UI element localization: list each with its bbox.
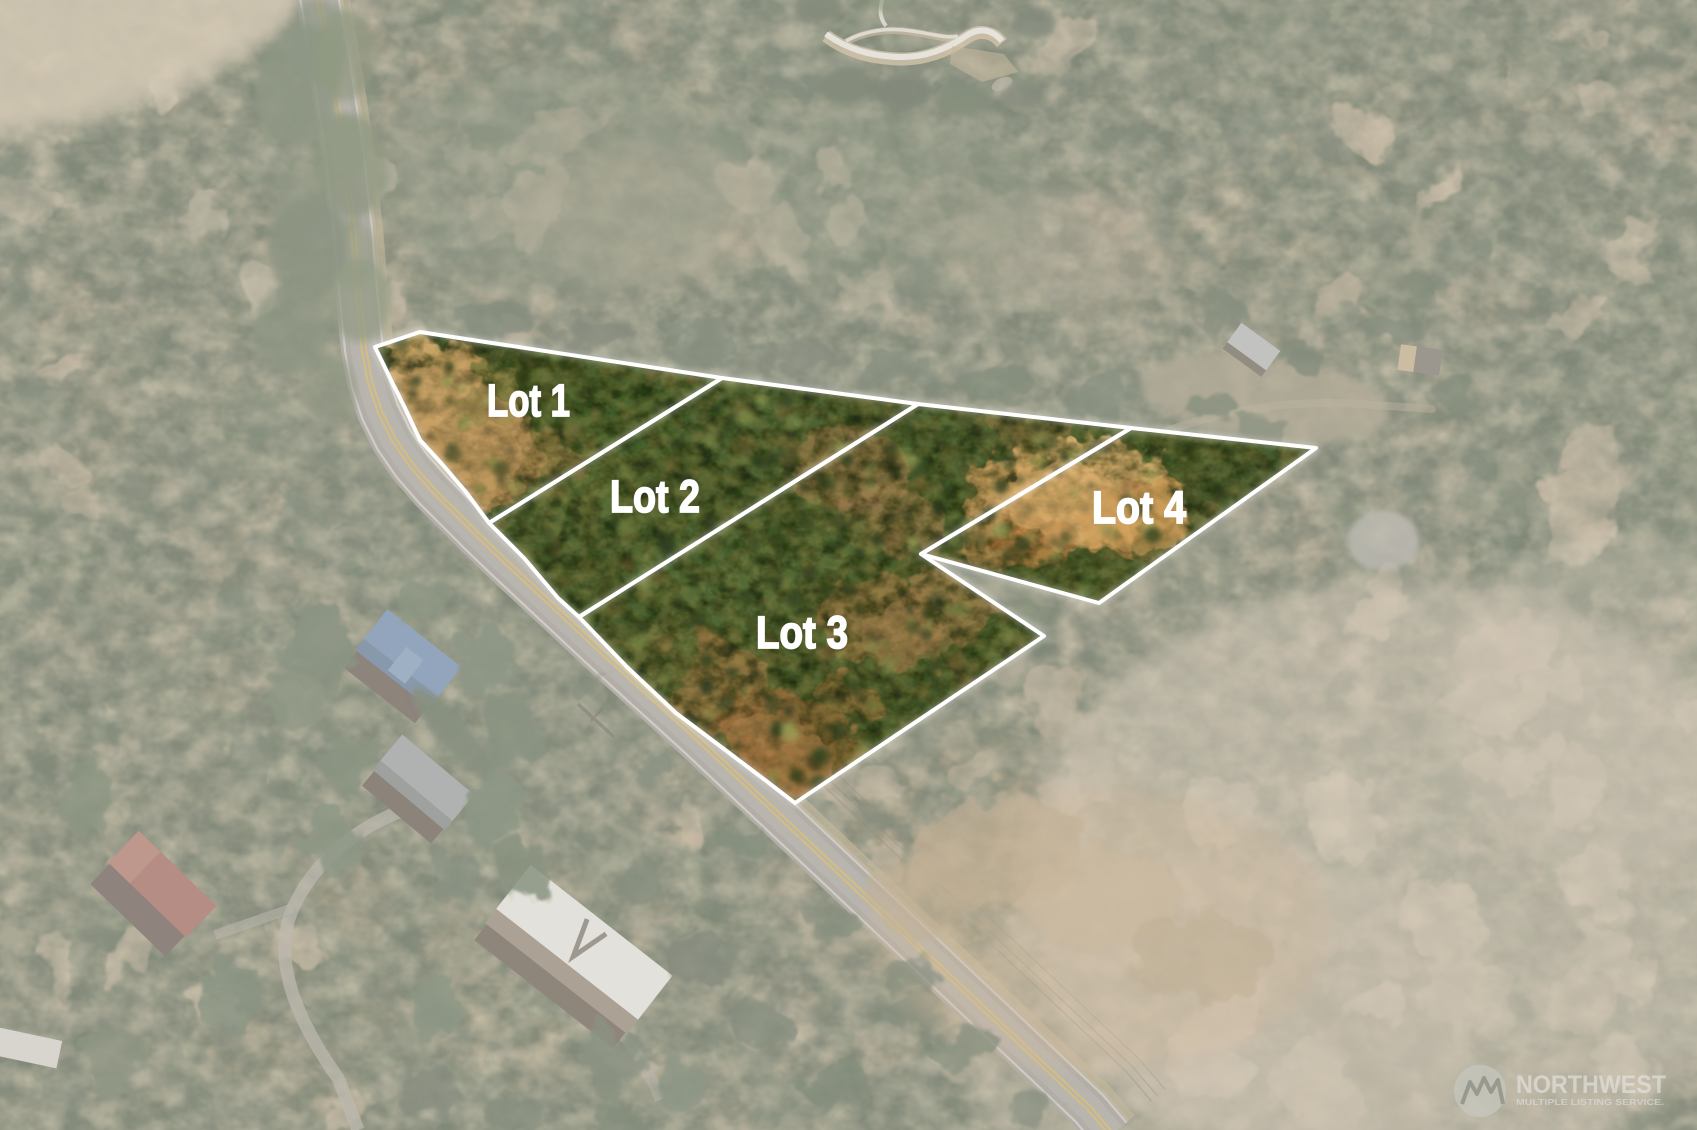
svg-text:MULTIPLE LISTING SERVICE.: MULTIPLE LISTING SERVICE. [1516,1097,1664,1107]
svg-text:NORTHWEST: NORTHWEST [1516,1071,1666,1099]
svg-text:Lot 2: Lot 2 [610,471,700,522]
svg-text:Lot 1: Lot 1 [487,375,570,426]
svg-text:Lot 3: Lot 3 [756,607,848,658]
svg-text:Lot 4: Lot 4 [1092,482,1186,533]
